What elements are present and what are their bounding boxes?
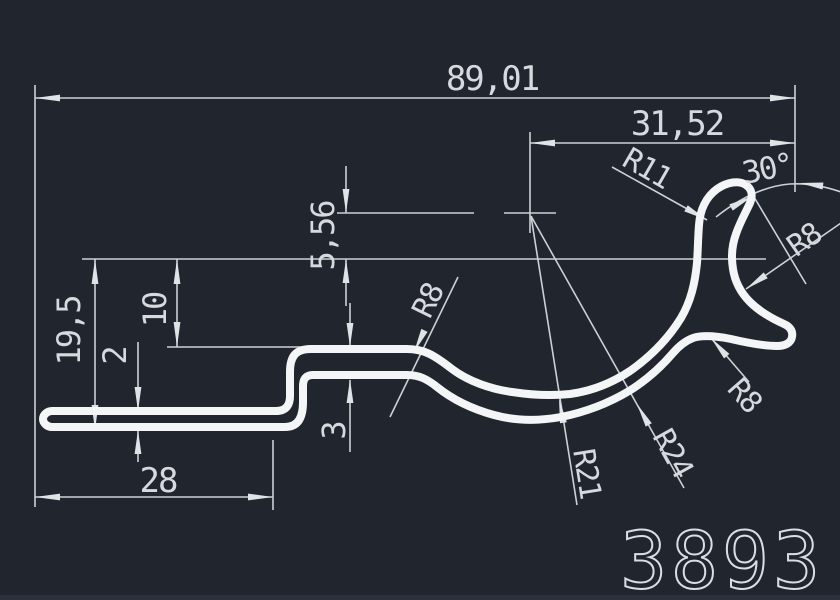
radius-labels: R11 R8 R8 R21 R24 R8 bbox=[405, 141, 828, 501]
arrow-10-top bbox=[174, 259, 181, 284]
arrow-28-right bbox=[248, 494, 273, 501]
arrow-10-bottom bbox=[174, 322, 181, 347]
arrow-angle-right bbox=[800, 183, 823, 190]
arrow-3-bottom bbox=[347, 379, 354, 403]
arrow-19-5-top bbox=[92, 259, 99, 284]
radius-label-r8-under: R8 bbox=[720, 372, 768, 420]
arrow-hook-right bbox=[770, 140, 795, 147]
drawing-number-text: 3893 bbox=[620, 517, 824, 600]
arrow-overall-left bbox=[35, 95, 60, 102]
arrow-2-bottom bbox=[135, 430, 142, 454]
dim-text-base-thickness: 2 bbox=[96, 347, 134, 364]
arrow-5-56-bottom bbox=[343, 259, 350, 283]
cad-drawing-canvas: 89,01 31,52 30° 19,5 10 2 3 5,56 28 R11 … bbox=[0, 0, 840, 600]
dim-text-center-offset: 5,56 bbox=[304, 201, 342, 271]
radius-label-r11: R11 bbox=[616, 141, 677, 196]
arrow-r24 bbox=[637, 404, 652, 427]
arrow-overall-right bbox=[770, 95, 795, 102]
arrow-r8-hook bbox=[746, 272, 768, 289]
radius-label-r21: R21 bbox=[565, 446, 607, 501]
window-bottom-edge bbox=[0, 595, 840, 600]
arrow-28-left bbox=[35, 494, 60, 501]
radius-label-r8-bend: R8 bbox=[405, 278, 451, 324]
dim-text-overall-width: 89,01 bbox=[446, 59, 539, 99]
dim-text-total-height: 19,5 bbox=[50, 296, 88, 365]
dim-text-hook-offset: 31,52 bbox=[631, 104, 723, 144]
arrow-3-top bbox=[347, 323, 354, 347]
dim-text-wall-thickness: 3 bbox=[315, 422, 353, 439]
dim-text-base-length: 28 bbox=[140, 461, 177, 501]
radius-label-r8-hook: R8 bbox=[781, 216, 829, 264]
arrow-hook-left bbox=[530, 140, 555, 147]
cad-viewport[interactable]: 89,01 31,52 30° 19,5 10 2 3 5,56 28 R11 … bbox=[0, 0, 840, 600]
arrow-5-56-top bbox=[343, 189, 350, 213]
dim-text-step-height: 10 bbox=[136, 292, 174, 327]
